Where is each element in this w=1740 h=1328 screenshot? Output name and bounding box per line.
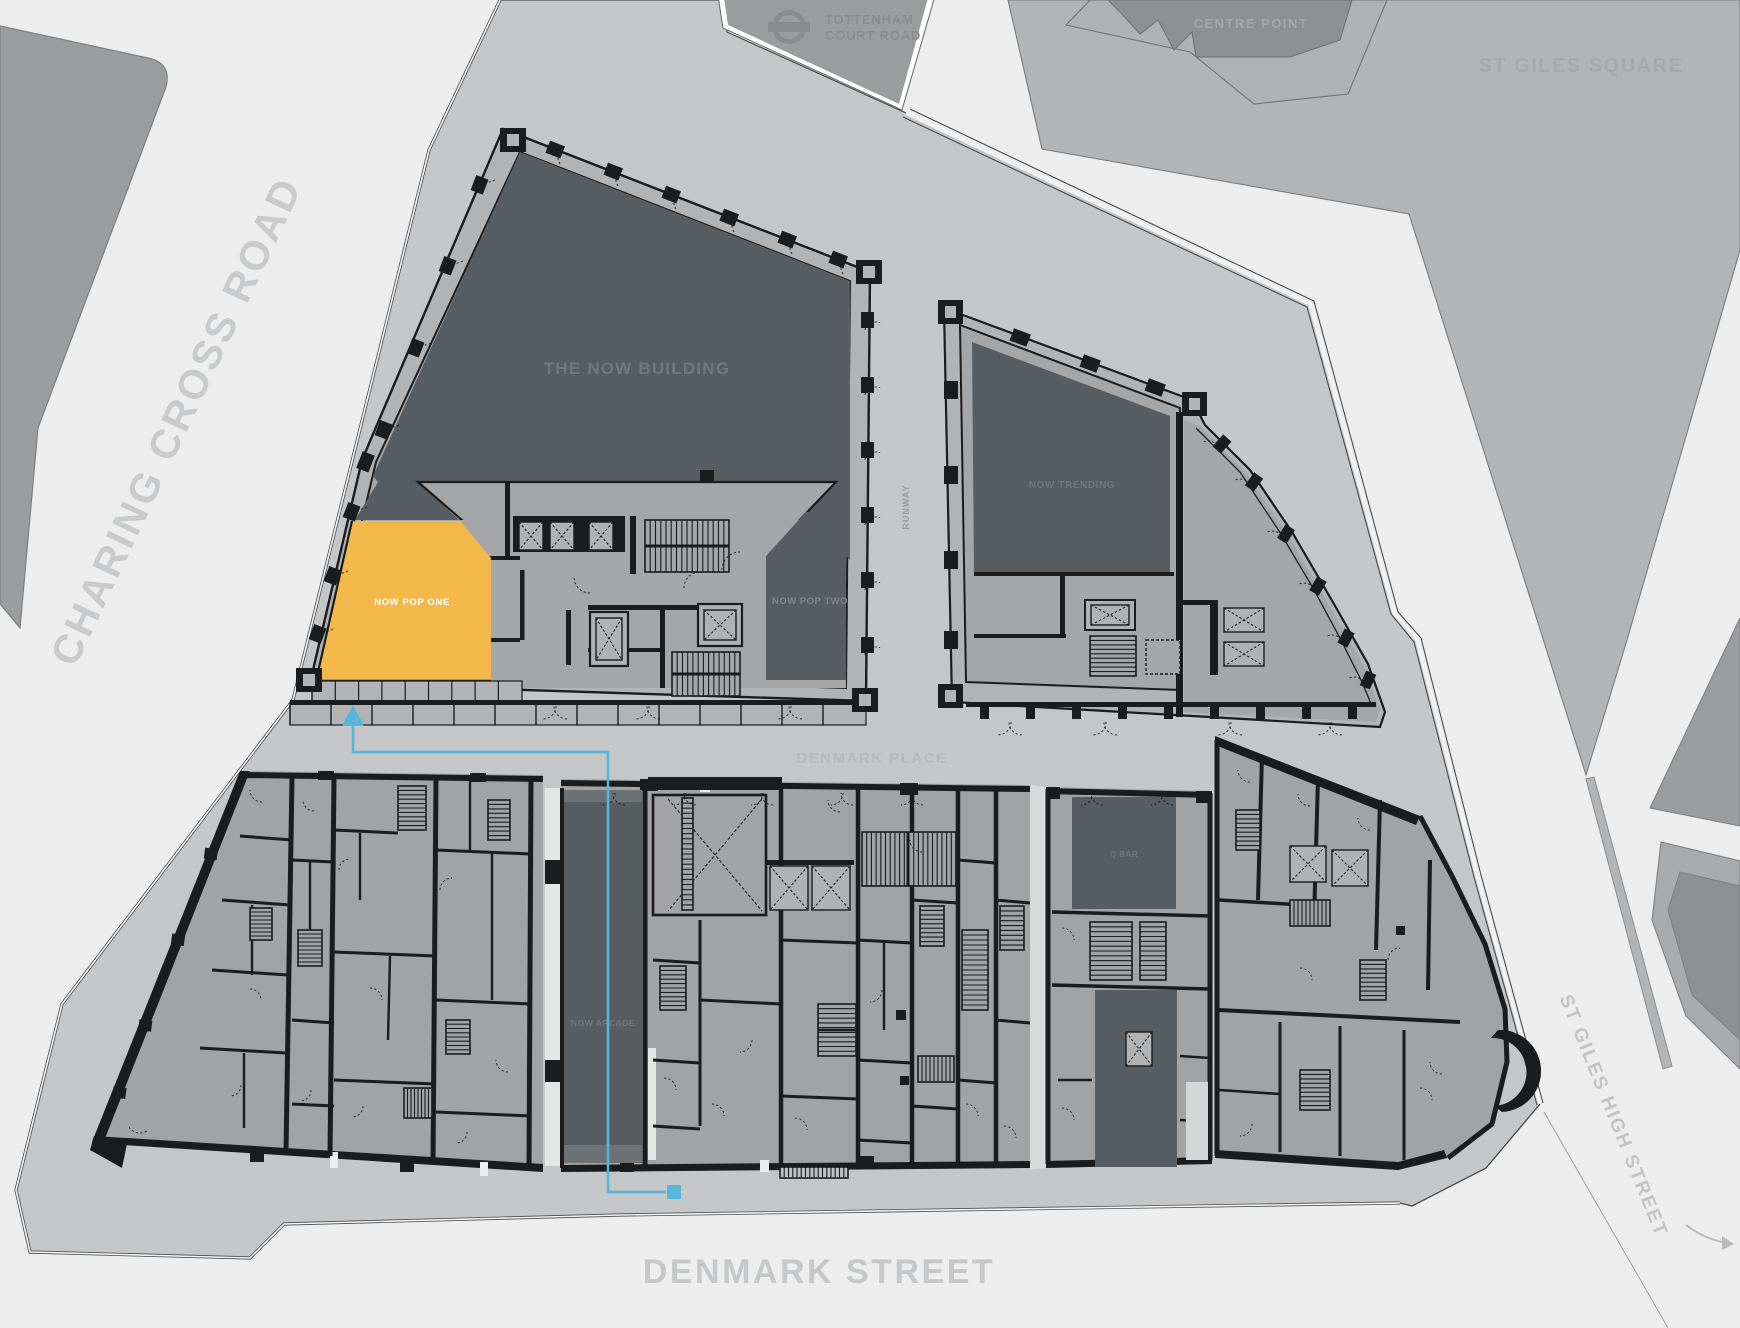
svg-text:DENMARK PLACE: DENMARK PLACE (796, 750, 947, 767)
svg-text:NOW POP TWO: NOW POP TWO (772, 596, 848, 607)
svg-text:RUNWAY: RUNWAY (901, 484, 911, 529)
svg-text:DENMARK STREET: DENMARK STREET (643, 1253, 995, 1291)
svg-text:CENTRE POINT: CENTRE POINT (1194, 16, 1309, 31)
svg-text:THE NOW BUILDING: THE NOW BUILDING (544, 359, 730, 378)
svg-text:NOW TRENDING: NOW TRENDING (1029, 480, 1116, 491)
svg-text:COURT ROAD: COURT ROAD (825, 28, 921, 43)
svg-text:ST GILES SQUARE: ST GILES SQUARE (1479, 55, 1684, 77)
svg-text:NOW ARCADE: NOW ARCADE (571, 1018, 635, 1028)
svg-text:NOW POP ONE: NOW POP ONE (374, 597, 450, 608)
svg-text:Q BAR: Q BAR (1110, 850, 1138, 859)
svg-text:TOTTENHAM: TOTTENHAM (825, 12, 914, 27)
